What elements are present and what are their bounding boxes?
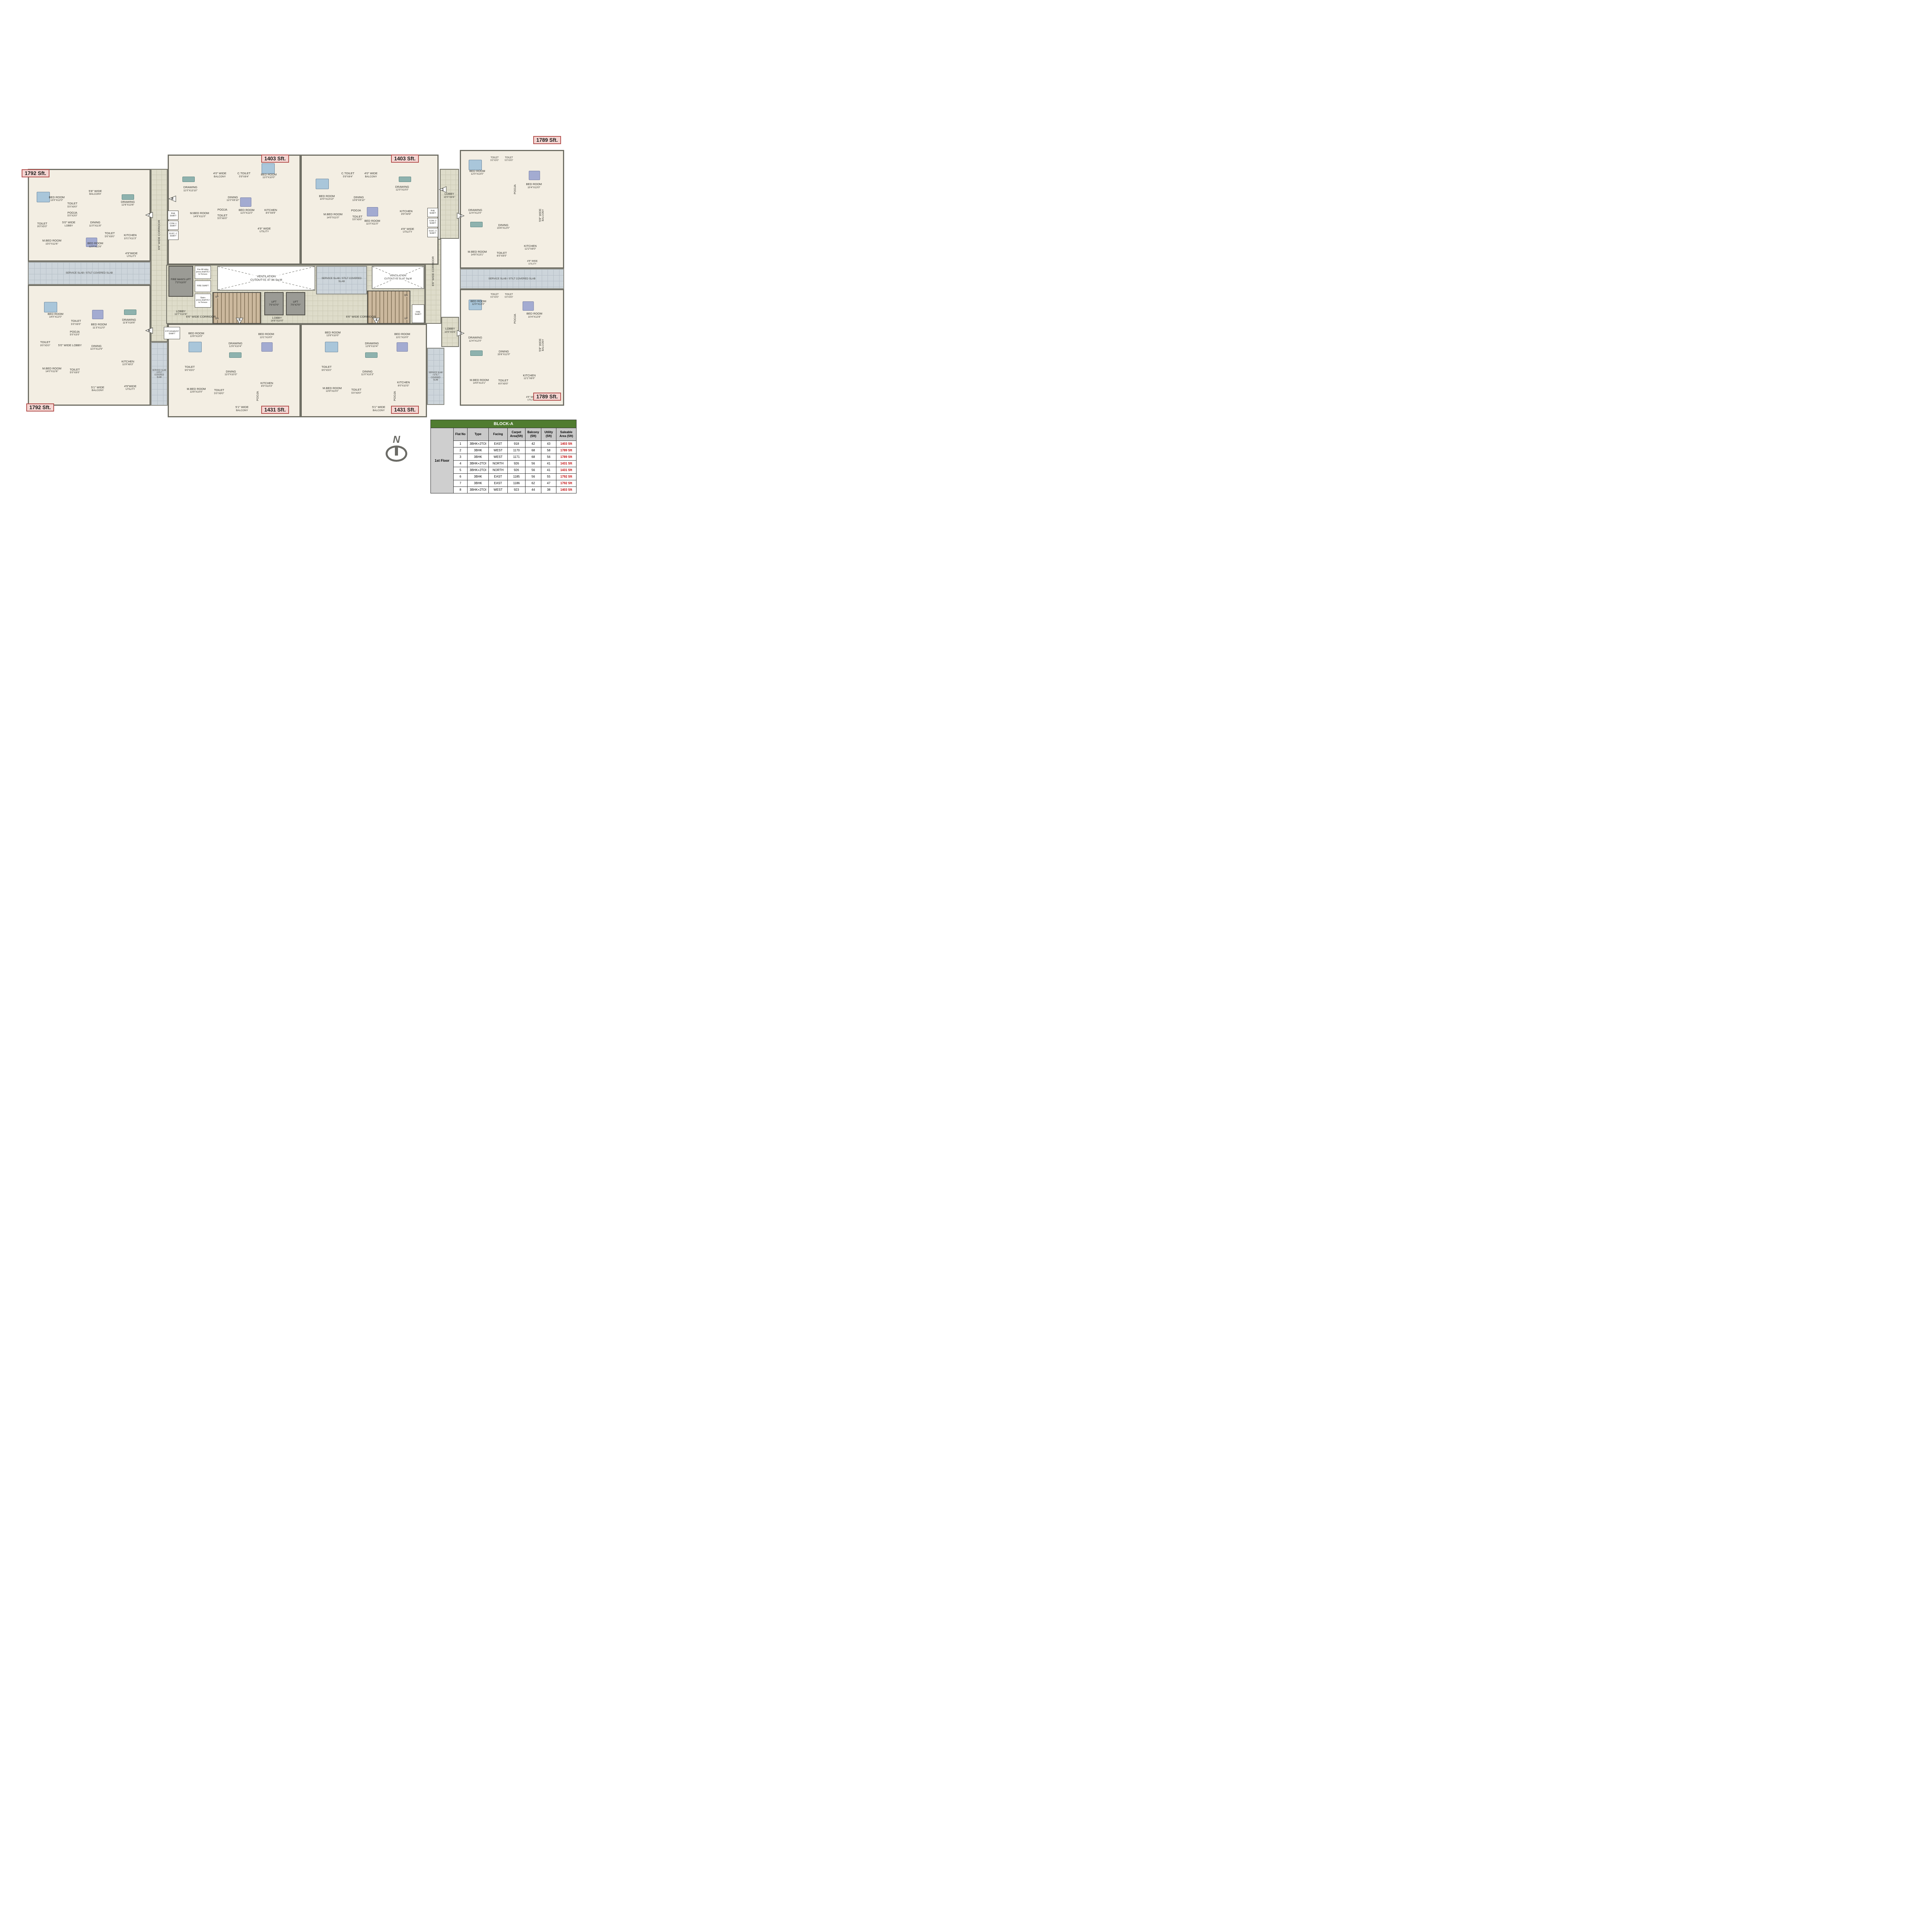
area-label-flat5: 1431 Sft. <box>261 406 289 414</box>
stairs-press-shaft: Stairs press.shaft B-2 to Terrace <box>195 294 211 308</box>
table-cell: EAST <box>489 441 508 447</box>
sofa-icon <box>470 222 483 227</box>
bed-icon <box>316 179 329 189</box>
table-cell: 1185 <box>508 474 526 480</box>
table-cell: 1789 Sft <box>556 454 576 461</box>
flat-4: BED ROOM13'9"X10'0" DRAWING12'6"X10'4" B… <box>301 324 427 417</box>
table-cell: 3BHK+2TOI <box>468 461 489 467</box>
sofa-icon <box>182 177 195 182</box>
table-cell: 55 <box>541 474 556 480</box>
compass: N <box>386 434 407 462</box>
table-cell: 923 <box>508 487 526 493</box>
lift-2: LIFT7'0"X7'0" <box>286 292 305 315</box>
table-cell: 41 <box>541 461 556 467</box>
stp-exhaust-shaft: STP EXHAUST SHAFT <box>164 327 180 339</box>
table-cell: 68 <box>526 454 541 461</box>
bed-icon <box>529 171 540 180</box>
table-cell: 6 <box>454 474 468 480</box>
bed-icon <box>261 342 272 352</box>
floor-plan-sheet: 1792 Sft. 1403 Sft. 1403 Sft. 1789 Sft. … <box>0 0 580 580</box>
flat-1: BED ROOM10'0"X13'10" C.TOILET5'9"X8'4" 4… <box>301 155 439 265</box>
sofa-icon <box>229 352 241 358</box>
bed-icon <box>240 197 252 207</box>
lobby-right-top: LOBBY10'0"X8'6" <box>440 169 459 239</box>
bed-icon <box>325 342 338 352</box>
table-cell: 3 <box>454 454 468 461</box>
service-slab-right-wing: SERVICE SLAB / STILT COVERED SLAB <box>460 269 564 289</box>
table-cell: 3BHK+2TOI <box>468 467 489 474</box>
table-cell: 1403 Sft <box>556 487 576 493</box>
col-header: Balcony(Sft) <box>526 428 541 441</box>
table-cell: 3BHK <box>468 474 489 480</box>
table-cell: 56 <box>526 467 541 474</box>
fire-lift-lobby-press-shaft: Fire lift lobby press.shaft B-2 to Terra… <box>195 266 211 279</box>
bed-icon <box>262 163 275 174</box>
table-cell: 42 <box>526 441 541 447</box>
flat-8: DRAWING11'0"X13'10" 4'0" WIDEBALCONY C.T… <box>168 155 301 265</box>
table-cell: NORTH <box>489 467 508 474</box>
elec1-shaft: ELEC.-1 SHAFT <box>168 231 179 240</box>
table-cell: 926 <box>508 467 526 474</box>
area-label-flat6: 1792 Sft. <box>26 403 54 412</box>
service-slab-left-wing: SERVICE SLAB / STILT COVERED SLAB <box>28 262 151 285</box>
table-cell: 41 <box>541 467 556 474</box>
com2-shaft: COM.-2 SHAFT <box>427 218 438 227</box>
table-cell: 3BHK+2TOI <box>468 441 489 447</box>
fireman-lift: FIRE MAN'S LIFT7'3"X10'0" <box>168 266 193 297</box>
table-cell: WEST <box>489 487 508 493</box>
service-slab-left-small: SERVICE SLAB / STILT COVERED SLAB <box>151 342 168 406</box>
table-cell: 2 <box>454 447 468 454</box>
table-cell: 38 <box>541 487 556 493</box>
ventilation-cutout-01: VENTILATIONCUTOUT-01 47.94 Sq.M <box>217 266 315 291</box>
table-cell: 1171 <box>508 454 526 461</box>
fire-shaft-right: FIRE SHAFT <box>412 304 424 323</box>
flat-marker-1: 1 <box>439 186 447 193</box>
fire-shaft-left: FIRE SHAFT <box>195 281 211 292</box>
bed-icon <box>367 207 378 216</box>
area-label-flat3: 1789 Sft. <box>533 393 561 401</box>
table-cell: WEST <box>489 447 508 454</box>
table-cell: 3BHK+2TOI <box>468 487 489 493</box>
area-label-flat8: 1403 Sft. <box>261 155 289 163</box>
table-cell: 926 <box>508 461 526 467</box>
bed-icon <box>37 192 50 202</box>
table-cell: 1186 <box>508 480 526 487</box>
sofa-icon <box>124 310 136 315</box>
table-cell: 4 <box>454 461 468 467</box>
ventilation-cutout-02: VENTILATIONCUTOUT-02 31.67 Sq.M <box>372 266 424 289</box>
flat-marker-6: 6 <box>145 327 153 334</box>
table-cell: 1170 <box>508 447 526 454</box>
bed-icon <box>92 310 103 319</box>
table-cell: 1 <box>454 441 468 447</box>
col-header: Flat No <box>454 428 468 441</box>
table-cell: NORTH <box>489 461 508 467</box>
corridor-left: 6'6" WIDE CORRIDOR <box>151 169 168 342</box>
flat-marker-3: 3 <box>457 330 464 337</box>
col-header: SaleableArea (Sft) <box>556 428 576 441</box>
sofa-icon <box>470 350 483 356</box>
col-header: Utility(Sft) <box>541 428 556 441</box>
area-label-flat1: 1403 Sft. <box>391 155 419 163</box>
phe-shaft-left: PHE SHAFT <box>168 211 179 220</box>
floor-label-cell: 1st Floor <box>431 428 454 493</box>
flat-7: BED ROOM13'0"X12'0" TOILET5'0"X9'0" 5'8"… <box>28 169 151 262</box>
com1-shaft: COM.-1 SHAFT <box>168 221 179 230</box>
compass-dial-icon <box>386 446 407 462</box>
lift-1: LIFT7'0"X7'0" <box>264 292 284 315</box>
table-cell: 3BHK <box>468 447 489 454</box>
col-header: Facing <box>489 428 508 441</box>
table-cell: 1789 Sft <box>556 447 576 454</box>
table-cell: 44 <box>526 487 541 493</box>
flat-marker-7: 7 <box>145 212 153 218</box>
area-label-flat4: 1431 Sft. <box>391 406 419 414</box>
sofa-icon <box>365 352 378 358</box>
bed-icon <box>397 342 408 352</box>
table-cell: 918 <box>508 441 526 447</box>
service-slab-flat4-side: SERVICE SLAB / STILT COVERED SLAB <box>427 348 444 405</box>
table-cell: EAST <box>489 480 508 487</box>
area-label-flat7: 1792 Sft. <box>22 169 49 177</box>
block-a-table: BLOCK-A 1st Floor Flat No Type Facing Ca… <box>430 420 577 493</box>
table-cell: 1792 Sft <box>556 480 576 487</box>
bed-icon <box>189 342 202 352</box>
sofa-icon <box>399 177 411 182</box>
table-cell: 47 <box>541 480 556 487</box>
table-cell: EAST <box>489 474 508 480</box>
table-cell: WEST <box>489 454 508 461</box>
elec2-shaft: ELEC.-2 SHAFT <box>427 228 438 237</box>
flat-5: BED ROOM13'9"X10'0" DRAWING12'6"X10'4" B… <box>168 324 301 417</box>
table-cell: 1792 Sft <box>556 474 576 480</box>
table-cell: 1431 Sft <box>556 461 576 467</box>
sofa-icon <box>122 194 134 200</box>
table-cell: 5 <box>454 467 468 474</box>
flat-6: BED ROOM14'0"X12'0" TOILET5'0"X9'0" POOJ… <box>28 285 151 406</box>
table-cell: 56 <box>541 454 556 461</box>
flat-2: BED ROOM12'0"X13'0" TOILET5'0"X9'0" TOIL… <box>460 150 564 269</box>
table-title: BLOCK-A <box>431 420 576 428</box>
table-cell: 1431 Sft <box>556 467 576 474</box>
table-cell: 8 <box>454 487 468 493</box>
area-label-flat2: 1789 Sft. <box>533 136 561 144</box>
col-header: CarpetArea(Sft) <box>508 428 526 441</box>
table-cell: 56 <box>526 461 541 467</box>
table-cell: 7 <box>454 480 468 487</box>
bed-icon <box>469 160 482 170</box>
bed-icon <box>523 301 534 311</box>
flat-marker-5: 5 <box>236 318 243 324</box>
flat-marker-4: 4 <box>372 318 380 324</box>
col-header: Type <box>468 428 489 441</box>
table-cell: 3BHK <box>468 454 489 461</box>
table-cell: 56 <box>526 474 541 480</box>
flat-3: BED ROOM12'0"X13'0" TOILET5'0"X9'0" TOIL… <box>460 289 564 406</box>
service-slab-center: SERVICE SLAB / STILT COVERED SLAB <box>316 266 367 294</box>
phe-shaft-right: PHE SHAFT <box>427 208 438 217</box>
compass-north-label: N <box>386 434 407 444</box>
flat-marker-8: 8 <box>168 196 176 202</box>
table-cell: 58 <box>541 447 556 454</box>
table-cell: 68 <box>526 447 541 454</box>
table-cell: 3BHK <box>468 480 489 487</box>
table-cell: 1403 Sft <box>556 441 576 447</box>
flat-marker-2: 2 <box>457 213 464 219</box>
table-cell: 43 <box>541 441 556 447</box>
table-cell: 62 <box>526 480 541 487</box>
bed-icon <box>44 302 57 313</box>
